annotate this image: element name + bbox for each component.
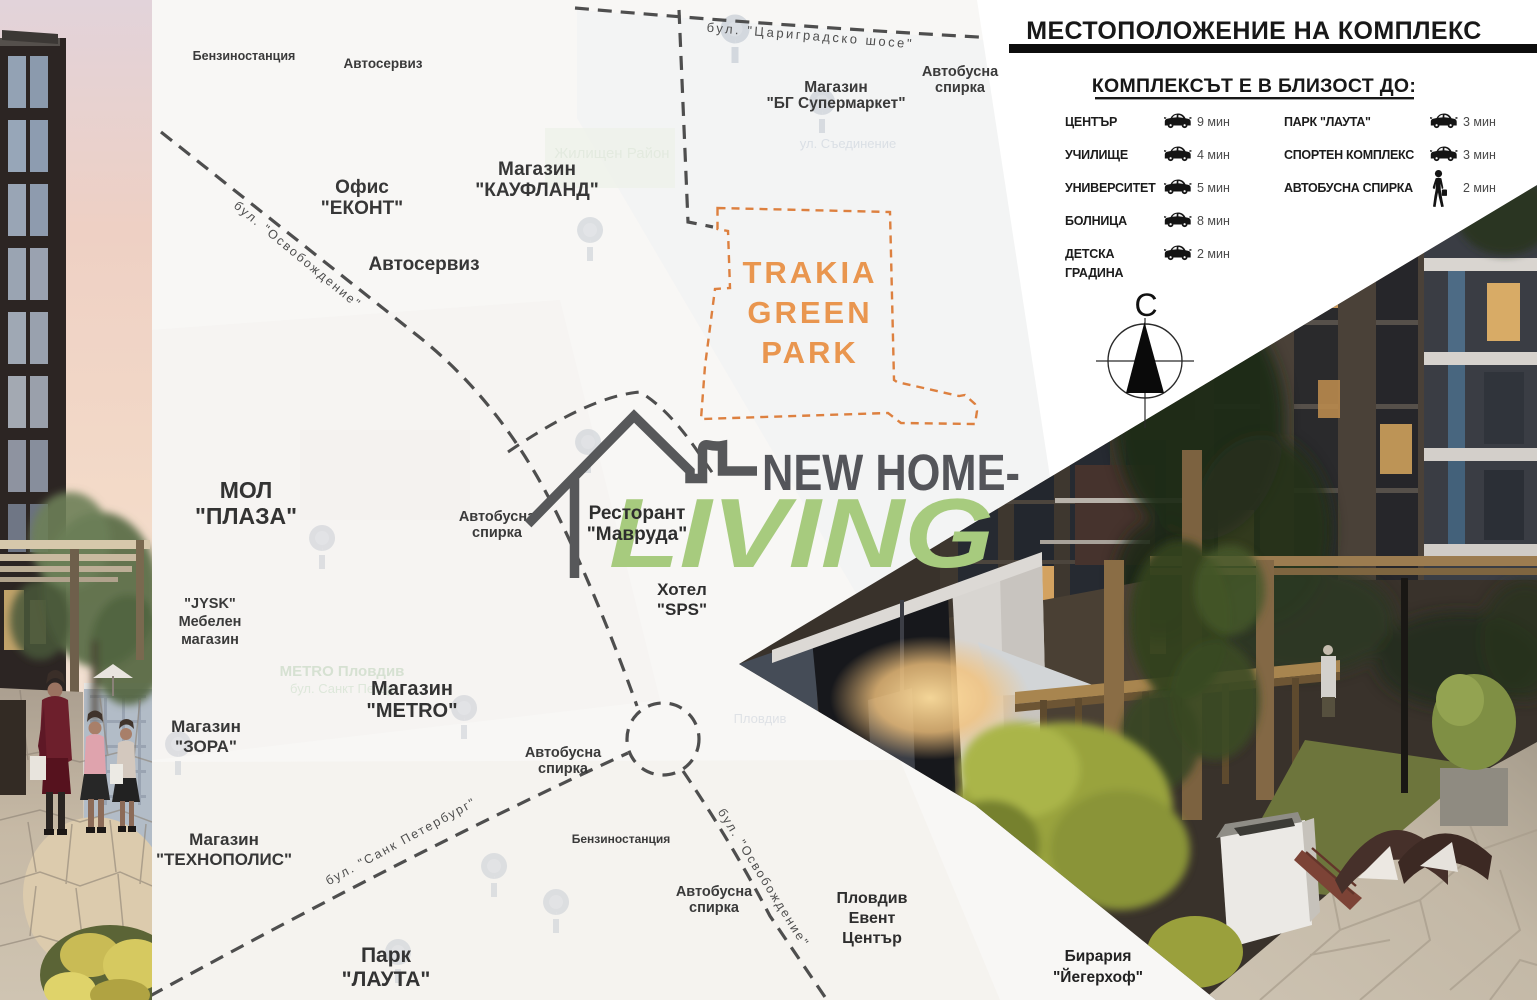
svg-text:"SPS": "SPS" <box>657 600 707 619</box>
svg-text:C: C <box>1134 287 1157 323</box>
svg-text:Хотел: Хотел <box>657 580 707 599</box>
svg-text:Магазин: Магазин <box>189 830 259 849</box>
svg-text:Автосервиз: Автосервиз <box>344 56 423 71</box>
svg-text:КОМПЛЕКСЪТ Е В БЛИЗОСТ ДО:: КОМПЛЕКСЪТ Е В БЛИЗОСТ ДО: <box>1092 75 1416 97</box>
svg-text:МЕСТОПОЛОЖЕНИЕ НА КОМПЛЕКС: МЕСТОПОЛОЖЕНИЕ НА КОМПЛЕКС <box>1026 17 1482 45</box>
svg-text:"ПЛАЗА": "ПЛАЗА" <box>195 503 297 529</box>
svg-text:"METRO": "METRO" <box>366 700 457 722</box>
svg-text:Магазин: Магазин <box>804 79 868 96</box>
svg-text:3 мин: 3 мин <box>1463 148 1496 162</box>
svg-text:МОЛ: МОЛ <box>220 477 273 503</box>
svg-text:"БГ Супермаркет": "БГ Супермаркет" <box>766 95 905 112</box>
svg-text:"ЕКОНТ": "ЕКОНТ" <box>321 198 403 219</box>
svg-text:СПОРТЕН КОМПЛЕКС: СПОРТЕН КОМПЛЕКС <box>1284 148 1414 162</box>
svg-text:Бензиностанция: Бензиностанция <box>572 832 671 846</box>
svg-text:спирка: спирка <box>935 80 986 96</box>
svg-text:2 мин: 2 мин <box>1463 181 1496 195</box>
svg-text:"ЗОРА": "ЗОРА" <box>175 737 237 756</box>
svg-text:БОЛНИЦА: БОЛНИЦА <box>1065 214 1127 228</box>
svg-text:"Йегерхоф": "Йегерхоф" <box>1053 968 1143 986</box>
svg-text:УНИВЕРСИТЕТ: УНИВЕРСИТЕТ <box>1065 181 1156 195</box>
svg-text:Магазин: Магазин <box>171 717 241 736</box>
svg-text:Евент: Евент <box>849 910 896 927</box>
svg-text:Магазин: Магазин <box>371 678 453 700</box>
svg-text:TRAKIA: TRAKIA <box>742 255 877 290</box>
svg-text:ДЕТСКА: ДЕТСКА <box>1065 247 1115 261</box>
svg-text:АВТОБУСНА СПИРКА: АВТОБУСНА СПИРКА <box>1284 181 1413 195</box>
svg-text:"JYSK": "JYSK" <box>184 596 236 612</box>
svg-text:ЦЕНТЪР: ЦЕНТЪР <box>1065 115 1117 129</box>
svg-text:Автобусна: Автобусна <box>922 64 999 80</box>
svg-text:Автобусна: Автобусна <box>459 509 536 525</box>
svg-text:спирка: спирка <box>472 525 523 541</box>
svg-text:спирка: спирка <box>689 900 740 916</box>
svg-text:УЧИЛИЩЕ: УЧИЛИЩЕ <box>1065 148 1128 162</box>
svg-text:Бензиностанция: Бензиностанция <box>193 49 296 63</box>
svg-text:Автобусна: Автобусна <box>676 884 753 900</box>
svg-text:GREEN: GREEN <box>747 295 872 330</box>
svg-text:Бирария: Бирария <box>1065 948 1132 965</box>
svg-text:Пловдив: Пловдив <box>734 711 787 726</box>
svg-text:"ЛАУТА": "ЛАУТА" <box>342 968 431 991</box>
svg-text:ГРАДИНА: ГРАДИНА <box>1065 266 1124 280</box>
svg-text:2 мин: 2 мин <box>1197 247 1230 261</box>
svg-text:9 мин: 9 мин <box>1197 115 1230 129</box>
svg-text:ПАРК "ЛАУТА": ПАРК "ЛАУТА" <box>1284 115 1371 129</box>
svg-text:Магазин: Магазин <box>498 159 576 180</box>
svg-text:5 мин: 5 мин <box>1197 181 1230 195</box>
svg-text:Офис: Офис <box>335 177 389 198</box>
svg-text:8 мин: 8 мин <box>1197 214 1230 228</box>
svg-text:Ресторант: Ресторант <box>589 503 686 524</box>
svg-text:3 мин: 3 мин <box>1463 115 1496 129</box>
svg-text:Парк: Парк <box>361 944 412 967</box>
svg-text:"КАУФЛАНД": "КАУФЛАНД" <box>475 180 599 201</box>
svg-text:Автобусна: Автобусна <box>525 745 602 761</box>
svg-text:Автосервиз: Автосервиз <box>368 254 479 275</box>
svg-text:спирка: спирка <box>538 761 589 777</box>
svg-text:"ТЕХНОПОЛИС": "ТЕХНОПОЛИС" <box>156 850 292 869</box>
svg-text:Пловдив: Пловдив <box>837 890 908 907</box>
svg-text:PARK: PARK <box>761 335 859 370</box>
svg-text:4 мин: 4 мин <box>1197 148 1230 162</box>
svg-text:"Мавруда": "Мавруда" <box>587 524 687 545</box>
svg-text:магазин: магазин <box>181 632 239 648</box>
svg-text:Център: Център <box>842 930 902 947</box>
svg-text:ул. Съединение: ул. Съединение <box>800 136 896 151</box>
svg-text:Мебелен: Мебелен <box>179 614 242 630</box>
